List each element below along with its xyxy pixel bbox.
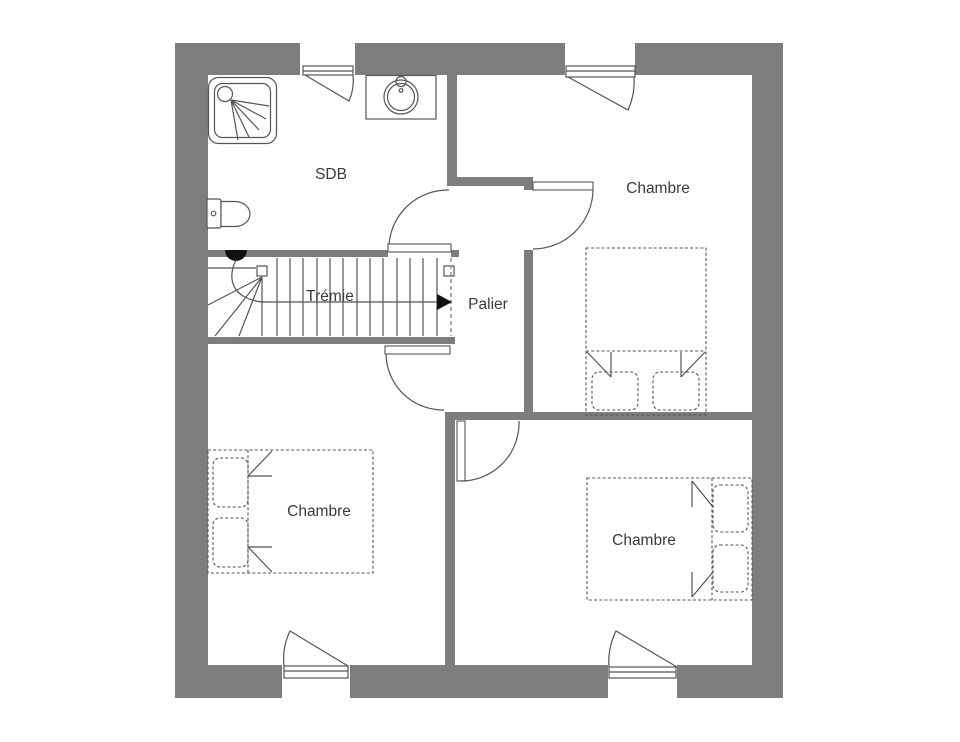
- room-label-chambre-bottom-left: Chambre: [287, 503, 351, 520]
- room-label-sdb: SDB: [315, 166, 347, 183]
- door-sdb: [388, 190, 451, 252]
- wall-stairs-bottom: [208, 337, 455, 344]
- bed-pillow-right: [653, 372, 699, 410]
- door-leaf: [533, 182, 593, 190]
- bed-pillow-bottom: [713, 545, 748, 592]
- window-swing: [305, 75, 353, 101]
- shower: [209, 78, 277, 144]
- wall-palier-top: [447, 177, 533, 186]
- door-swing-arc: [389, 190, 449, 244]
- room-label-tremie: Trémie: [306, 288, 354, 305]
- window-bottom-left: [284, 631, 348, 678]
- window-top-right: [566, 66, 635, 110]
- door-swing-arc: [533, 190, 593, 249]
- window-bottom-right: [609, 631, 677, 678]
- room-label-chambre-bottom-right: Chambre: [612, 532, 676, 549]
- door-swing-arc: [461, 421, 519, 481]
- wall-bottom-middle: [350, 665, 608, 698]
- room-label-chambre-top-right: Chambre: [626, 180, 690, 197]
- door-chambre-bottom-left: [385, 346, 450, 410]
- bed-corner-folds: [692, 481, 713, 597]
- window-swing: [284, 631, 348, 666]
- toilet-tank: [207, 199, 221, 228]
- bed-frame: [586, 248, 706, 415]
- stair-winder-treads: [208, 268, 262, 336]
- bed-pillow-left: [592, 372, 638, 410]
- door-leaf: [385, 346, 450, 354]
- wall-right: [752, 43, 783, 698]
- wall-palier-east-stub: [524, 177, 533, 190]
- wall-top-middle: [355, 43, 565, 75]
- toilet: [207, 199, 250, 228]
- sink: [366, 76, 436, 120]
- wall-stairs-top-stub: [451, 250, 459, 257]
- stair-newel-post-right: [444, 266, 454, 276]
- window-sill: [284, 666, 348, 678]
- shower-tray-inner: [215, 84, 271, 138]
- bed-pillow-bottom: [213, 518, 248, 567]
- wall-bedrooms-divider: [445, 412, 455, 665]
- window-swing: [568, 77, 634, 110]
- toilet-bowl: [221, 201, 250, 226]
- stair-newel-post-left: [257, 266, 267, 276]
- floor-plan-page: SDB Chambre Palier Trémie Chambre Chambr…: [0, 0, 960, 742]
- stair-direction-arrow: [437, 294, 452, 310]
- bed-pillow-top: [213, 458, 248, 507]
- window-top-left: [303, 66, 353, 101]
- bed-top-right: [586, 248, 706, 415]
- wall-palier-east: [524, 250, 533, 420]
- window-swing: [609, 631, 677, 667]
- door-leaf: [457, 421, 465, 481]
- door-chambre-bottom-right: [457, 421, 519, 481]
- stair-treads: [277, 258, 437, 336]
- wall-left: [175, 43, 208, 698]
- door-leaf: [388, 244, 451, 252]
- bed-corner-folds: [587, 352, 705, 377]
- room-label-palier: Palier: [468, 296, 508, 313]
- door-swing-arc: [386, 354, 444, 410]
- bed-corner-folds: [248, 451, 272, 572]
- sink-counter: [366, 76, 436, 120]
- bed-pillow-top: [713, 485, 748, 532]
- stair-start-marker: [225, 250, 247, 261]
- door-chambre-top-right: [533, 182, 593, 249]
- wall-horizontal-middle: [445, 412, 752, 420]
- wall-sdb-chambre-divider: [447, 75, 457, 186]
- floor-plan-drawing: SDB Chambre Palier Trémie Chambre Chambr…: [0, 0, 960, 742]
